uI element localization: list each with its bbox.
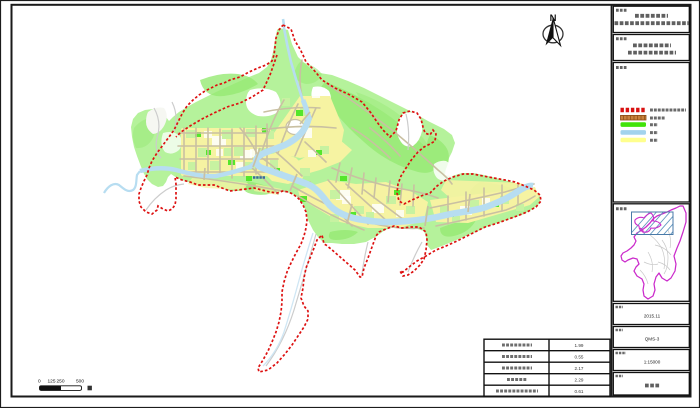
svg-text:0.55: 0.55 [575,354,584,359]
svg-text:1.99: 1.99 [575,343,584,348]
svg-text:QMS-3: QMS-3 [645,337,660,342]
svg-text:0: 0 [38,379,41,385]
svg-text:0.61: 0.61 [575,389,584,394]
svg-text:2.29: 2.29 [575,377,584,382]
svg-text:1:15000: 1:15000 [644,360,661,365]
svg-text:500: 500 [76,379,84,385]
svg-text:125: 125 [48,379,56,385]
svg-text:2015.11: 2015.11 [644,314,661,319]
svg-text:2.17: 2.17 [575,366,584,371]
svg-text:250: 250 [57,379,65,385]
